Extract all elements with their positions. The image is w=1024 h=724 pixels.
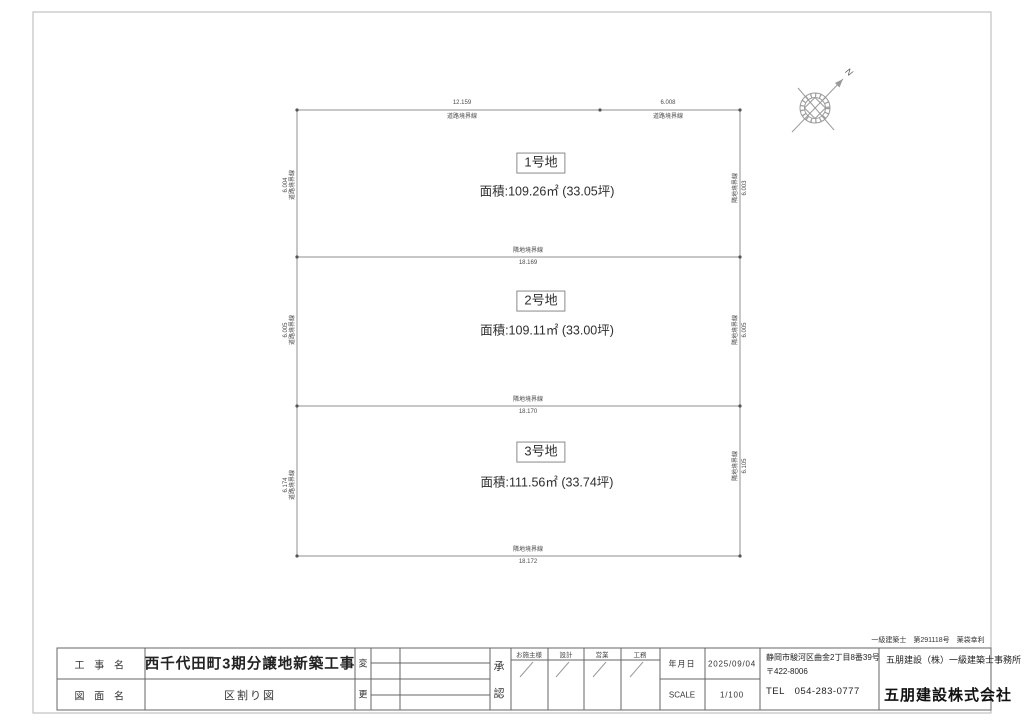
page-border (33, 12, 991, 713)
drawing-name-label: 図 面 名 (74, 688, 127, 703)
company-address-line1: 静岡市駿河区曲金2丁目8番39号 (766, 652, 880, 663)
scale-label: SCALE (669, 691, 695, 700)
date-label: 年月日 (669, 659, 696, 670)
signature-col-client: お施主様 (516, 649, 542, 659)
right-dimension-value-3: 6.105 (742, 458, 748, 473)
architect-license-note: 一級建築士 第291118号 薬袋幸利 (871, 635, 984, 645)
inner-boundary-label-1: 隣地境界線 (513, 248, 543, 254)
north-compass-icon (792, 79, 843, 132)
approval-label-bottom: 認 (494, 685, 507, 701)
company-phone: TEL 054-283-0777 (766, 683, 860, 697)
left-dimension-value-1: 6.004 (283, 177, 289, 192)
project-name-value: 西千代田町3期分譲地新築工事 (145, 653, 356, 674)
road-boundary-label-top-1: 道路境界線 (447, 114, 477, 120)
signature-col-construction: 工務 (634, 649, 647, 659)
signature-col-design: 設計 (560, 649, 573, 659)
left-dimension-value-2: 6.005 (283, 322, 289, 337)
road-boundary-label-left-3: 道路境界線 (290, 470, 296, 500)
company-address-line2: 〒422-8006 (766, 666, 808, 677)
signature-slash-marks (520, 662, 643, 677)
lot-2-name: 2号地 (516, 291, 565, 312)
right-dimension-value-1: 6.003 (742, 180, 748, 195)
company-name: 五朋建設株式会社 (884, 684, 1012, 705)
date-value: 2025/09/04 (708, 660, 756, 669)
inner-boundary-label-2: 隣地境界線 (513, 397, 543, 403)
inner-boundary-value-2: 18.170 (519, 409, 537, 415)
neighbor-boundary-label-right-3: 隣地境界線 (733, 451, 739, 481)
lot-3-area: 面積:111.56㎡ (33.74坪) (481, 472, 614, 491)
approval-label-top: 承 (494, 658, 507, 674)
neighbor-boundary-label-right-2: 隣地境界線 (733, 315, 739, 345)
signature-col-sales: 営業 (596, 649, 609, 659)
bottom-boundary-value: 18.172 (519, 559, 537, 565)
bottom-boundary-label: 隣地境界線 (513, 547, 543, 553)
top-dimension-value-1: 12.159 (453, 100, 471, 106)
plan-linework (0, 0, 1024, 724)
drawing-name-value: 区割り図 (224, 687, 276, 703)
lot-1-name: 1号地 (516, 153, 565, 174)
inner-boundary-value-1: 18.169 (519, 260, 537, 266)
architect-office-name: 五朋建設（株）一級建築士事務所 (886, 653, 1021, 666)
neighbor-boundary-label-right-1: 隣地境界線 (733, 173, 739, 203)
revision-label-top: 変 (358, 657, 367, 670)
lot-2-area: 面積:109.11㎡ (33.00坪) (480, 320, 614, 339)
lot-1-area: 面積:109.26㎡ (33.05坪) (480, 181, 615, 200)
scale-value: 1/100 (720, 691, 744, 700)
road-boundary-label-left-1: 道路境界線 (290, 170, 296, 200)
top-dimension-value-2: 6.008 (660, 100, 675, 106)
lot-3-name: 3号地 (516, 442, 565, 463)
project-name-label: 工 事 名 (74, 657, 127, 672)
right-dimension-value-2: 6.005 (742, 322, 748, 337)
drawing-sheet: N 12.159 道路境界線 6.008 道路境界線 6.004 道路境界線 6… (0, 0, 1024, 724)
road-boundary-label-top-2: 道路境界線 (653, 114, 683, 120)
left-dimension-value-3: 6.174 (283, 477, 289, 492)
road-boundary-label-left-2: 道路境界線 (290, 315, 296, 345)
revision-label-bottom: 更 (358, 688, 367, 701)
